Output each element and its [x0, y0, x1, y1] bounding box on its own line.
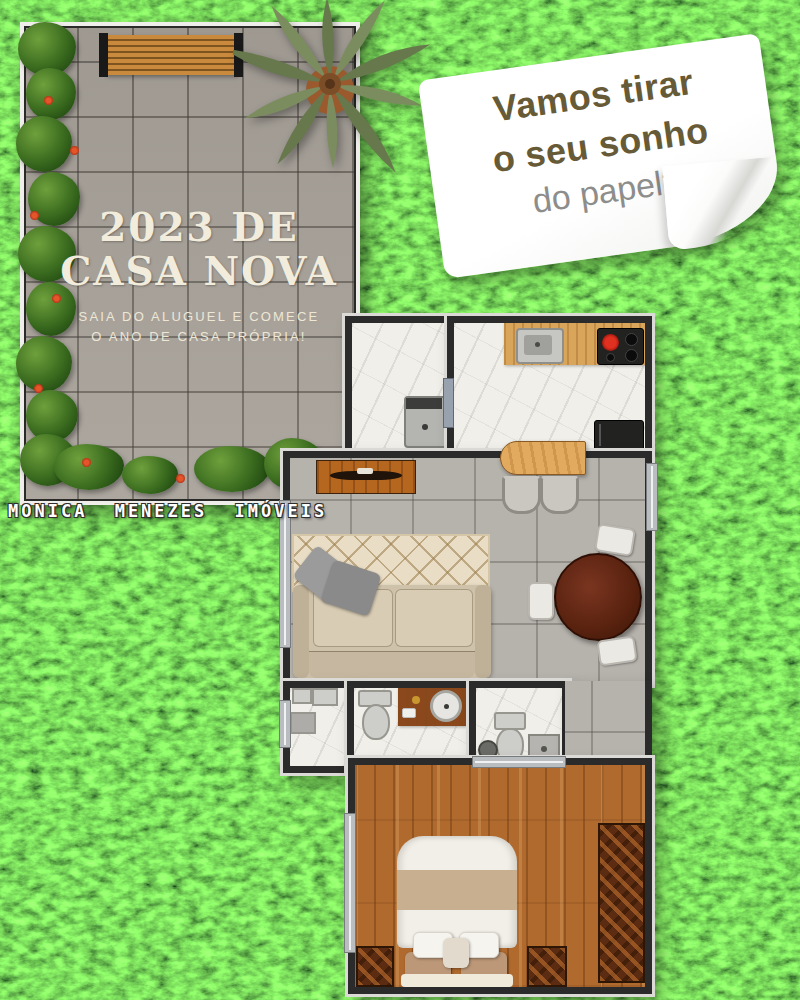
dining-alcove — [565, 681, 652, 766]
campaign-title-line2: CASA NOVA — [54, 250, 344, 294]
room-laundry — [345, 316, 451, 456]
campaign-title-line1: 2023 DE — [54, 206, 344, 250]
bush — [26, 68, 76, 120]
laundry-tub — [404, 396, 448, 448]
bed-skirt — [401, 974, 513, 987]
wardrobe — [598, 823, 645, 983]
vanity-accessory — [402, 708, 416, 718]
red-flower — [30, 211, 39, 220]
room-closet — [283, 681, 351, 773]
promo-image: { "patio": { "title_line1": "2023 DE", "… — [0, 0, 800, 1000]
red-flower — [44, 96, 53, 105]
wooden-bench — [105, 35, 237, 75]
shelf-item — [312, 688, 338, 706]
bush — [122, 456, 178, 494]
dining-chair — [596, 635, 637, 666]
palm-tree — [233, 0, 443, 190]
bar-stool — [502, 476, 541, 514]
kitchen-sink — [516, 328, 564, 364]
kitchen-door — [443, 378, 454, 428]
storage-box — [290, 712, 316, 734]
closet-window — [279, 700, 291, 748]
dining-window — [646, 463, 658, 531]
tv-stand — [316, 460, 416, 494]
red-flower — [34, 384, 43, 393]
bar-counter — [500, 441, 586, 475]
living-window — [279, 500, 291, 648]
nightstand — [356, 946, 394, 987]
bed-runner — [397, 870, 517, 910]
dining-chair — [594, 523, 636, 557]
bedroom-sliding-door — [472, 756, 566, 768]
campaign-subtitle-line1: SAIA DO ALUGUEL E COMECE — [54, 307, 344, 327]
vanity-round-sink — [430, 690, 462, 722]
room-living — [283, 451, 652, 685]
vanity-accessory — [412, 696, 420, 704]
bed-pillow — [443, 938, 469, 968]
bedroom-window — [344, 813, 356, 953]
shelf-item — [292, 688, 312, 704]
room-kitchen — [447, 316, 652, 456]
red-flower — [70, 146, 79, 155]
stove-cooktop — [597, 328, 644, 365]
bar-stool — [540, 476, 579, 514]
nightstand — [527, 946, 567, 987]
toilet-bowl — [362, 704, 390, 740]
brand-name: MONICA MENEZES IMÓVEIS — [8, 501, 327, 521]
refrigerator — [594, 420, 644, 451]
campaign-subtitle-line2: O ANO DE CASA PRÓPRIA! — [54, 327, 344, 347]
bush — [54, 444, 124, 490]
red-flower — [176, 474, 185, 483]
dining-chair — [528, 582, 554, 620]
room-bedroom — [348, 758, 652, 994]
red-flower — [82, 458, 91, 467]
bush — [194, 446, 270, 492]
patio-headline: 2023 DE CASA NOVA SAIA DO ALUGUEL E COME… — [54, 206, 344, 348]
dining-table — [554, 553, 642, 641]
double-bed — [397, 836, 517, 987]
bush — [16, 116, 72, 172]
